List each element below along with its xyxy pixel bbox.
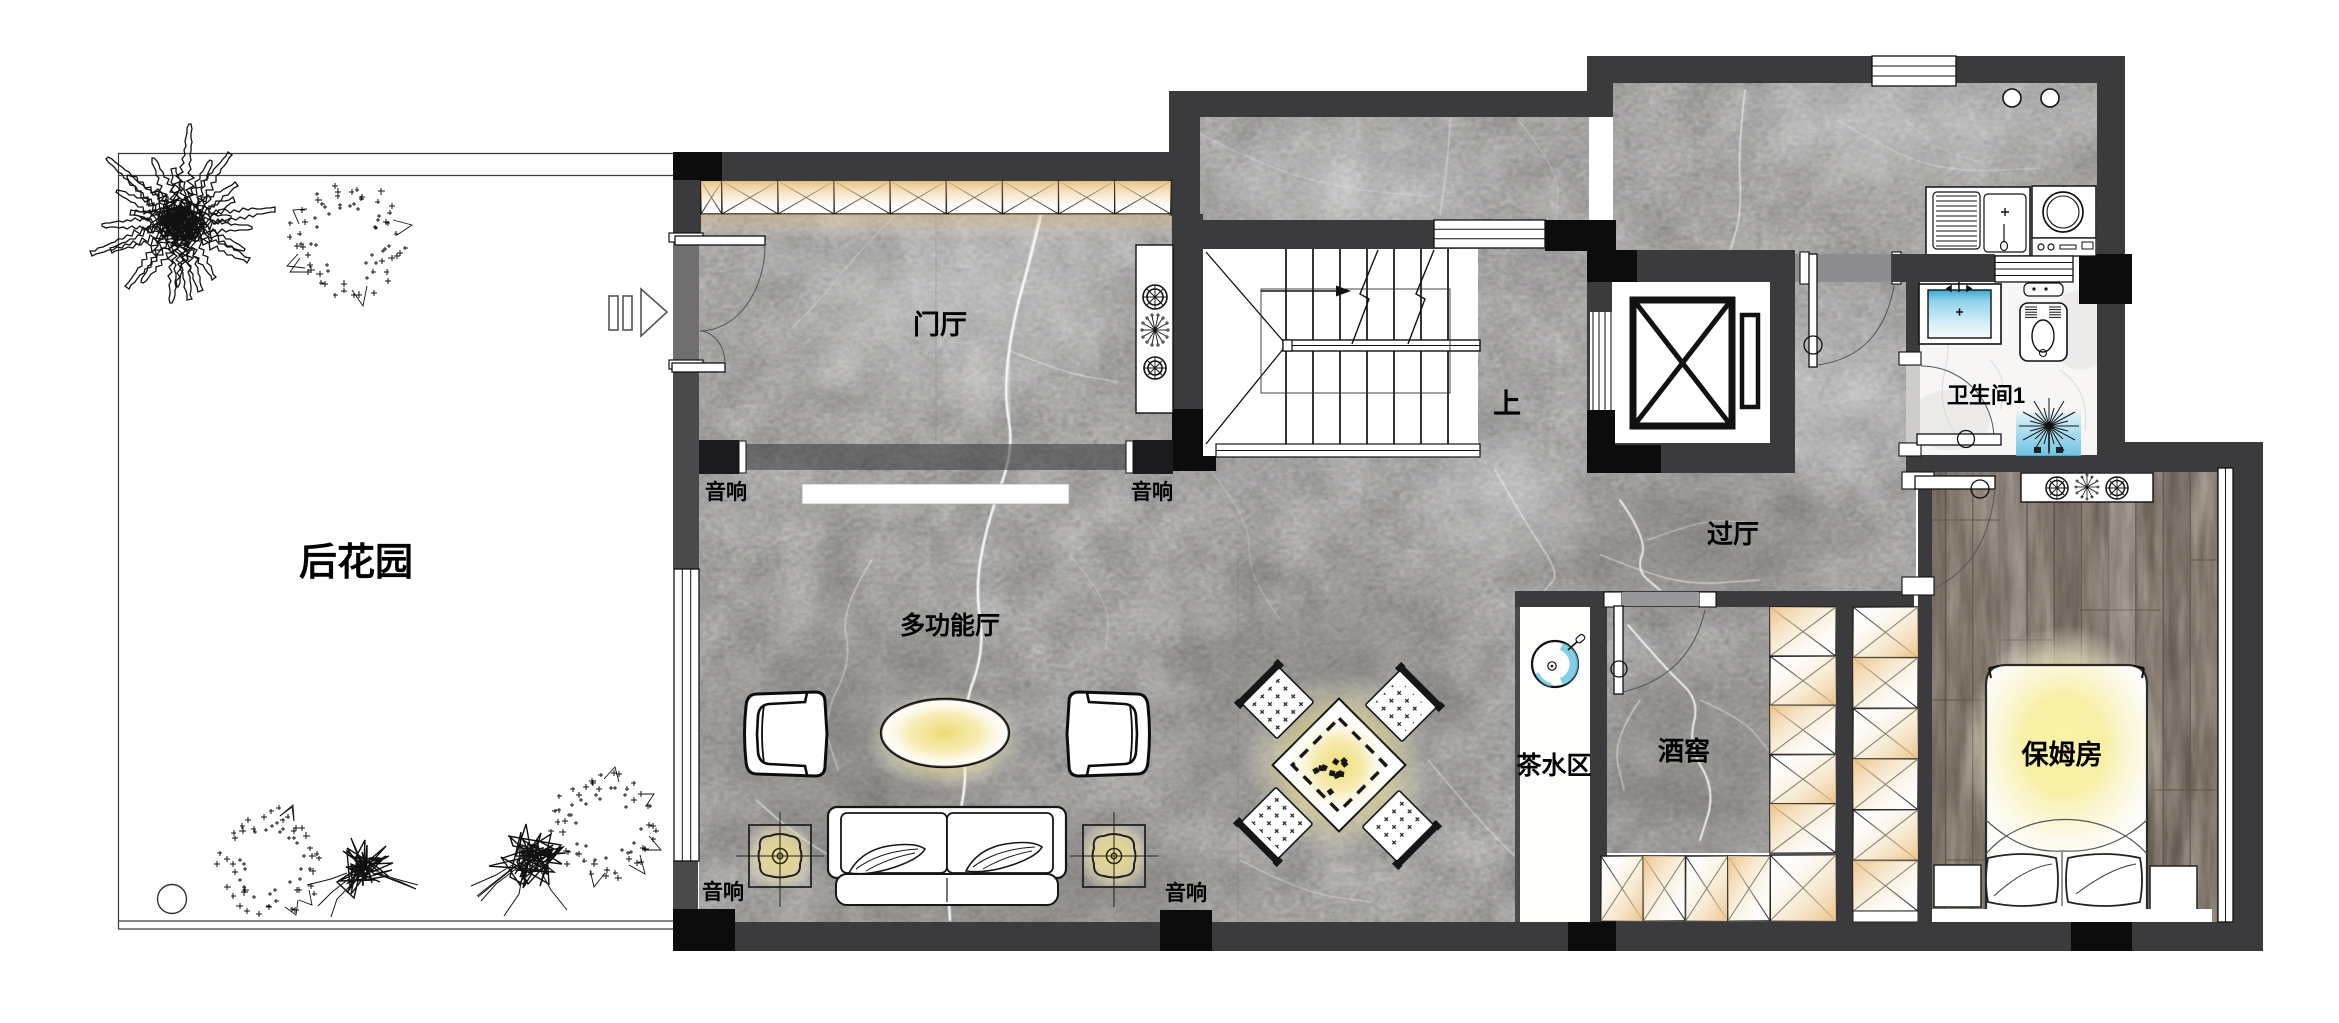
svg-text:茶水区: 茶水区 [1516,752,1591,780]
svg-text:多功能厅: 多功能厅 [900,611,1000,640]
svg-text:音响: 音响 [1165,881,1207,905]
svg-text:过厅: 过厅 [1707,519,1759,549]
svg-text:门厅: 门厅 [913,310,967,340]
svg-text:音响: 音响 [1131,480,1173,504]
svg-text:酒窖: 酒窖 [1658,736,1710,766]
svg-text:音响: 音响 [702,880,744,904]
svg-text:后花园: 后花园 [299,542,413,584]
svg-text:音响: 音响 [705,480,747,504]
svg-text:保姆房: 保姆房 [2021,740,2103,770]
svg-text:上: 上 [1493,388,1521,419]
svg-text:卫生间1: 卫生间1 [1947,383,2025,408]
